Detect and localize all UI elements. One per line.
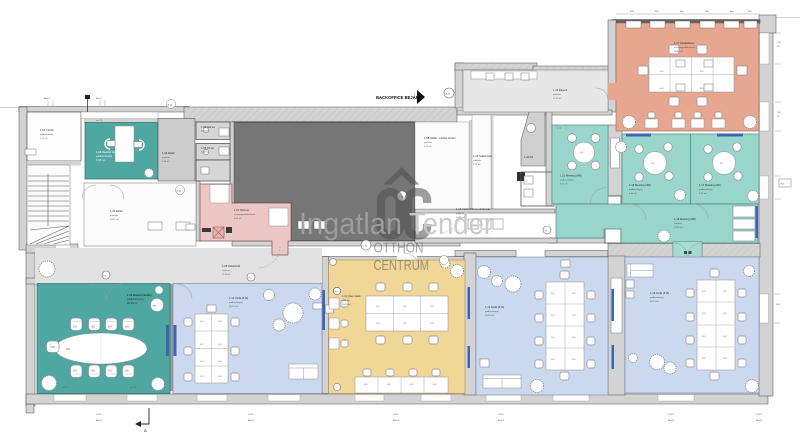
svg-text:Ingatlan: Ingatlan <box>299 206 402 241</box>
svg-text:30.79 m²: 30.79 m² <box>650 300 659 303</box>
svg-text:padlószőnyeg: padlószőnyeg <box>485 311 499 313</box>
svg-text:parketta: parketta <box>424 141 433 144</box>
svg-text:15.62 m²: 15.62 m² <box>674 226 683 229</box>
svg-text:parketta: parketta <box>553 93 562 96</box>
svg-text:A-10: A-10 <box>446 93 451 96</box>
svg-text:szőnyegpadlóburkolat: szőnyegpadlóburkolat <box>674 46 696 49</box>
svg-text:1.13 Iroda (8 fő): 1.13 Iroda (8 fő) <box>485 305 504 309</box>
svg-text:11.02 m²: 11.02 m² <box>553 97 562 100</box>
svg-text:1.21 Meeting (4fő): 1.21 Meeting (4fő) <box>560 174 582 178</box>
svg-text:33 35: 33 35 <box>756 414 762 416</box>
svg-text:A9-01: A9-01 <box>44 97 51 100</box>
svg-text:1.12 Iroda (8 fő): 1.12 Iroda (8 fő) <box>650 291 669 295</box>
svg-text:14.22 m²: 14.22 m² <box>110 218 119 221</box>
svg-text:A9-03: A9-03 <box>498 419 505 422</box>
svg-text:4.05 m²: 4.05 m² <box>162 160 170 163</box>
svg-text:padlószőnyeg: padlószőnyeg <box>650 297 664 299</box>
svg-text:33 35: 33 35 <box>393 414 399 416</box>
svg-text:1.02 Előtér: 1.02 Előtér <box>162 151 175 155</box>
svg-text:1.01 Tároló: 1.01 Tároló <box>40 128 54 132</box>
svg-text:1.05 Ffi wc: 1.05 Ffi wc <box>201 146 215 150</box>
svg-text:802: 802 <box>91 370 96 373</box>
svg-text:1.19 Teakonyha: 1.19 Teakonyha <box>473 154 492 158</box>
svg-text:808: 808 <box>66 348 71 351</box>
svg-text:A9-03: A9-03 <box>96 419 103 422</box>
svg-text:1.08 Oldalshaft: 1.08 Oldalshaft <box>222 264 240 268</box>
svg-text:parketta: parketta <box>110 214 119 217</box>
svg-text:806: 806 <box>73 326 78 329</box>
svg-text:32.15 m²: 32.15 m² <box>127 301 138 305</box>
svg-text:A: A <box>144 428 147 433</box>
svg-text:parketta: parketta <box>674 222 683 225</box>
svg-text:A9-01: A9-01 <box>96 97 103 100</box>
svg-text:800: 800 <box>125 370 130 373</box>
svg-text:1.11 Open desk: 1.11 Open desk <box>342 294 361 298</box>
svg-text:parketta: parketta <box>342 299 351 302</box>
svg-text:36.80 m²: 36.80 m² <box>674 50 683 53</box>
svg-text:6.62 m²: 6.62 m² <box>234 217 242 220</box>
svg-text:parketta: parketta <box>473 159 482 162</box>
svg-text:33 35: 33 35 <box>96 414 102 416</box>
svg-text:28.35 m²: 28.35 m² <box>342 303 351 306</box>
svg-text:cm 75: cm 75 <box>130 387 137 389</box>
svg-text:11.60 m²: 11.60 m² <box>222 273 231 276</box>
svg-text:szőnyegpadlóburkolat: szőnyegpadlóburkolat <box>234 213 256 216</box>
svg-text:kerámia: kerámia <box>201 130 210 133</box>
svg-text:padlóburkolat: padlóburkolat <box>96 154 112 158</box>
svg-text:C-14: C-14 <box>363 246 369 248</box>
svg-text:808: 808 <box>51 346 56 349</box>
svg-text:CENTRUM: CENTRUM <box>374 257 430 274</box>
svg-text:2.15 m²: 2.15 m² <box>40 137 48 140</box>
svg-text:805: 805 <box>125 326 130 329</box>
svg-text:1.17 Meeting (4fő): 1.17 Meeting (4fő) <box>699 183 721 187</box>
svg-text:30.78 m²: 30.78 m² <box>485 314 494 317</box>
svg-text:9.70 m²: 9.70 m² <box>560 183 568 186</box>
svg-text:1.06 Női wc: 1.06 Női wc <box>201 125 216 129</box>
svg-text:28.71 m²: 28.71 m² <box>229 305 238 308</box>
svg-text:kerámia: kerámia <box>201 151 210 154</box>
svg-text:804: 804 <box>108 326 113 329</box>
svg-text:801: 801 <box>108 370 113 373</box>
svg-text:padlóburkolat: padlóburkolat <box>40 133 54 136</box>
svg-text:1.08 Géllér - köztes terület: 1.08 Géllér - köztes terület <box>424 136 456 140</box>
svg-text:33 35: 33 35 <box>668 414 674 416</box>
svg-text:A9-03: A9-03 <box>756 419 763 422</box>
svg-text:803: 803 <box>73 370 78 373</box>
svg-text:A9-03: A9-03 <box>393 419 400 422</box>
svg-text:8.46 m²: 8.46 m² <box>629 192 637 195</box>
svg-text:A9-03: A9-03 <box>248 419 255 422</box>
svg-text:Tender: Tender <box>409 206 493 241</box>
svg-text:1.18 Meeting (4fő): 1.18 Meeting (4fő) <box>629 183 651 187</box>
svg-text:805: 805 <box>91 326 96 329</box>
svg-text:cm 75: cm 75 <box>96 120 103 122</box>
svg-text:A-16: A-16 <box>168 104 173 107</box>
svg-text:8.98 m²: 8.98 m² <box>96 158 105 162</box>
svg-text:OTTHON: OTTHON <box>374 240 424 257</box>
svg-text:1.04 Előtér: 1.04 Előtér <box>110 209 123 213</box>
svg-text:parketta: parketta <box>162 156 171 159</box>
svg-text:cspksző: cspksző <box>222 270 231 272</box>
svg-text:1.14 Iroda (6 fő): 1.14 Iroda (6 fő) <box>229 296 248 300</box>
svg-text:1.15 Board meeting: 1.15 Board meeting <box>127 293 152 297</box>
svg-text:1.07 Szerver: 1.07 Szerver <box>234 208 249 212</box>
svg-text:3.74 m²: 3.74 m² <box>473 163 481 166</box>
svg-text:1.20 Ffi: 1.20 Ffi <box>524 155 533 159</box>
svg-text:1.16 Meeting (4M): 1.16 Meeting (4M) <box>674 217 696 221</box>
svg-text:33 35: 33 35 <box>498 414 504 416</box>
svg-text:8.42 m²: 8.42 m² <box>699 192 707 195</box>
svg-text:9.22 m²: 9.22 m² <box>424 145 432 148</box>
svg-text:1.03 Vezetői iroda: 1.03 Vezetői iroda <box>96 150 119 154</box>
svg-text:padlószőnyeg: padlószőnyeg <box>629 189 643 191</box>
svg-text:padlószőnyeg: padlószőnyeg <box>127 297 144 301</box>
svg-text:A9-03: A9-03 <box>668 419 675 422</box>
svg-text:cm 75: cm 75 <box>62 387 69 389</box>
svg-text:1.17 StudioRoom: 1.17 StudioRoom <box>674 41 696 45</box>
svg-text:padlószőnyeg: padlószőnyeg <box>699 189 713 191</box>
svg-text:A-46: A-46 <box>177 190 182 193</box>
svg-text:padlószőnyeg: padlószőnyeg <box>229 302 243 304</box>
svg-text:padlószőnyeg: padlószőnyeg <box>560 180 574 182</box>
svg-text:33 35: 33 35 <box>248 414 254 416</box>
